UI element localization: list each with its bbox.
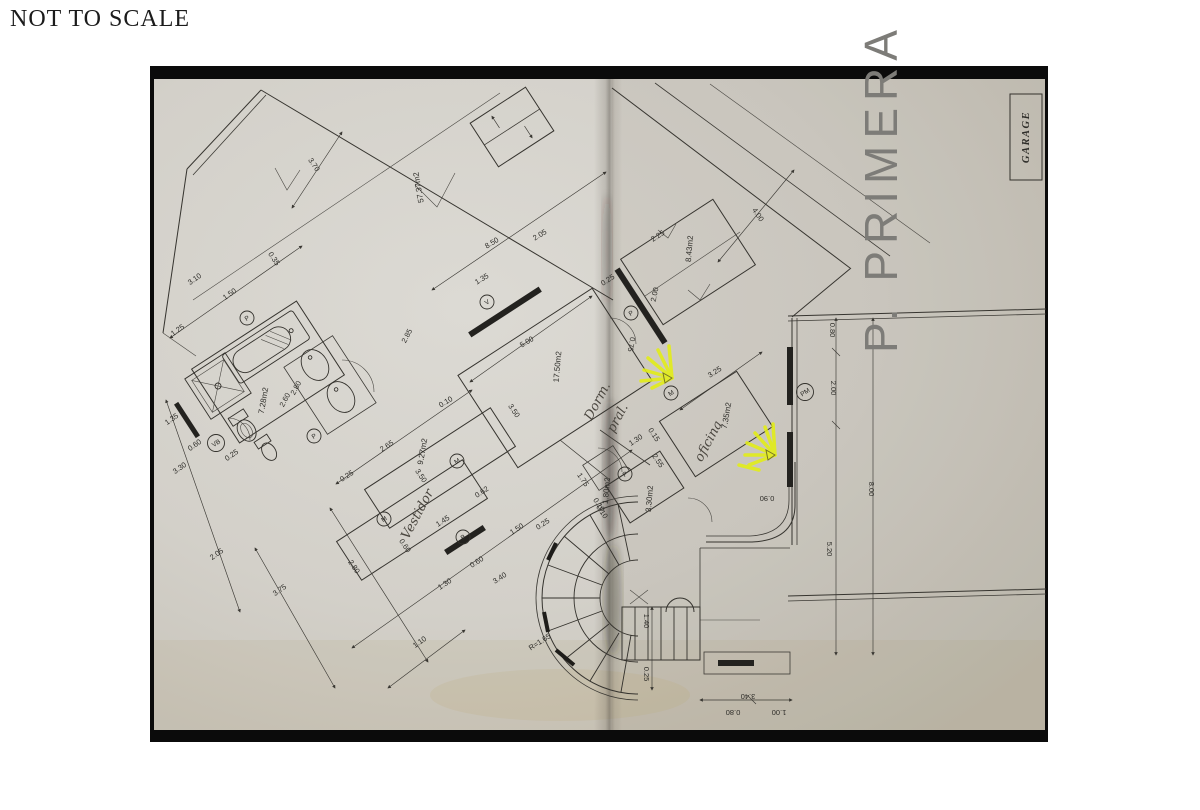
dimension-label: 0.80 [828,323,837,338]
garage-label: GARAGE [1021,111,1032,163]
dimension-label: 8.00 [867,482,876,497]
dimension-label: 1.00 [772,708,787,717]
dimension-label: 3.40 [741,692,756,701]
screenshot-stage: NOT TO SCALE [0,0,1200,810]
dimension-label: 0.80 [726,708,741,717]
dimension-label: 1.40 [642,614,651,629]
dimension-label: 0.90 [760,494,775,503]
dimension-label: 5.20 [825,542,834,557]
paper-right-shade [612,79,1045,730]
floor-title: P. PRIMERA [855,23,907,353]
dimension-label: 0.25 [642,667,651,682]
plan-photo: P. PRIMERA GARAGE 3.700.353.101.501.258.… [0,0,1200,810]
dimension-label: 2.00 [829,381,838,396]
